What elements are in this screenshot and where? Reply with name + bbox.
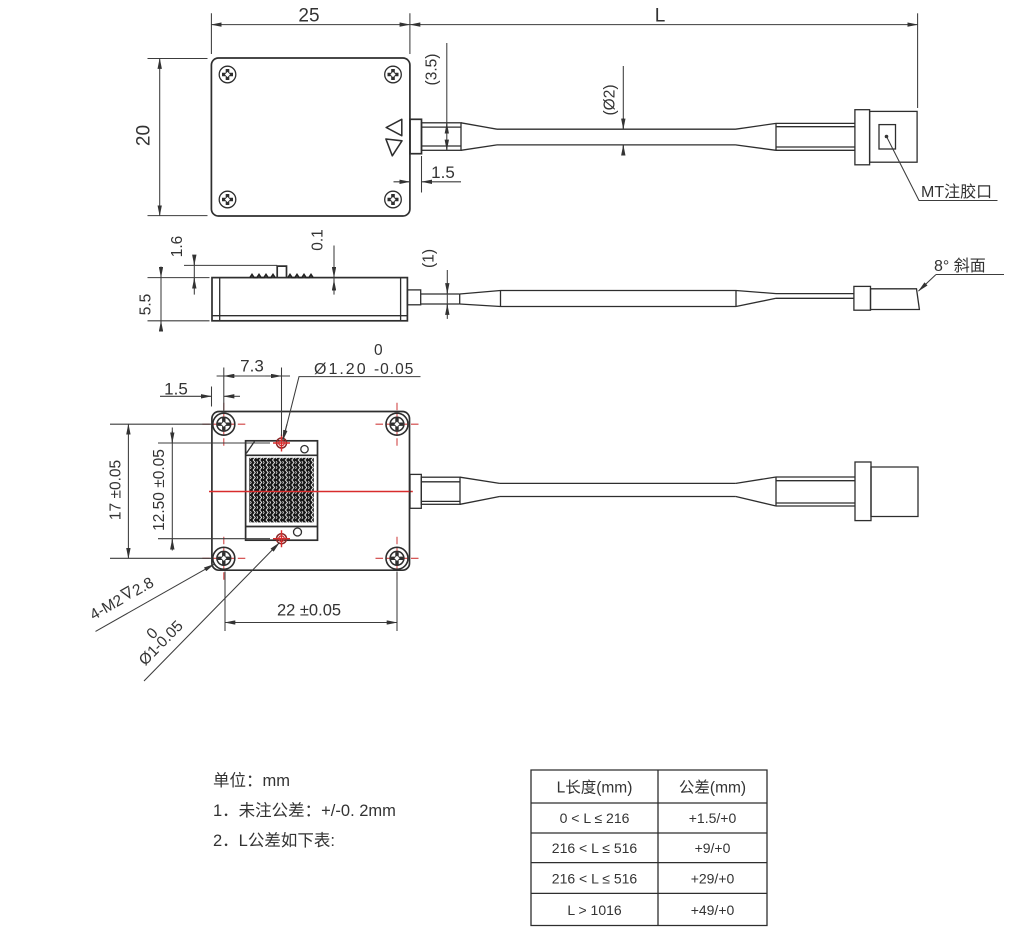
svg-text:MT注胶口: MT注胶口 (921, 183, 992, 201)
svg-text:L: L (655, 6, 666, 27)
svg-text:(1): (1) (421, 249, 438, 268)
svg-text:L长度(mm): L长度(mm) (557, 779, 633, 797)
svg-text:1.6: 1.6 (169, 236, 186, 258)
svg-text:L > 1016: L > 1016 (567, 902, 622, 918)
svg-text:17 ±0.05: 17 ±0.05 (108, 460, 125, 520)
svg-text:-0.05: -0.05 (150, 618, 187, 655)
svg-text:25: 25 (298, 6, 319, 27)
svg-text:2.8: 2.8 (130, 574, 157, 599)
svg-text:1.5: 1.5 (164, 380, 188, 399)
svg-text:-0.05: -0.05 (374, 361, 414, 378)
svg-text:0 < L ≤ 216: 0 < L ≤ 216 (560, 810, 630, 826)
svg-text:4-M2: 4-M2 (87, 592, 126, 624)
svg-text:1.5: 1.5 (431, 163, 455, 182)
svg-text:2．L公差如下表:: 2．L公差如下表: (213, 831, 335, 850)
svg-text:Ø1.20: Ø1.20 (314, 361, 368, 378)
svg-text:公差(mm): 公差(mm) (679, 779, 746, 797)
svg-text:8° 斜面: 8° 斜面 (934, 257, 986, 275)
svg-text:+29/+0: +29/+0 (691, 871, 735, 887)
svg-text:+9/+0: +9/+0 (695, 840, 731, 856)
svg-text:(3.5): (3.5) (424, 54, 441, 86)
svg-text:216 < L ≤ 516: 216 < L ≤ 516 (552, 840, 638, 856)
svg-text:216 < L ≤ 516: 216 < L ≤ 516 (552, 871, 638, 887)
svg-text:0: 0 (374, 342, 383, 359)
svg-text:5.5: 5.5 (138, 294, 155, 316)
svg-text:1．未注公差：+/-0. 2mm: 1．未注公差：+/-0. 2mm (213, 801, 396, 820)
svg-text:+1.5/+0: +1.5/+0 (689, 810, 737, 826)
svg-text:(Ø2): (Ø2) (602, 85, 619, 116)
svg-text:12.50 ±0.05: 12.50 ±0.05 (151, 449, 168, 531)
svg-text:+49/+0: +49/+0 (691, 902, 735, 918)
svg-text:0.1: 0.1 (310, 229, 327, 251)
svg-text:7.3: 7.3 (240, 357, 264, 376)
svg-text:单位：mm: 单位：mm (213, 771, 290, 790)
svg-text:20: 20 (134, 125, 155, 146)
svg-text:22 ±0.05: 22 ±0.05 (277, 602, 341, 620)
